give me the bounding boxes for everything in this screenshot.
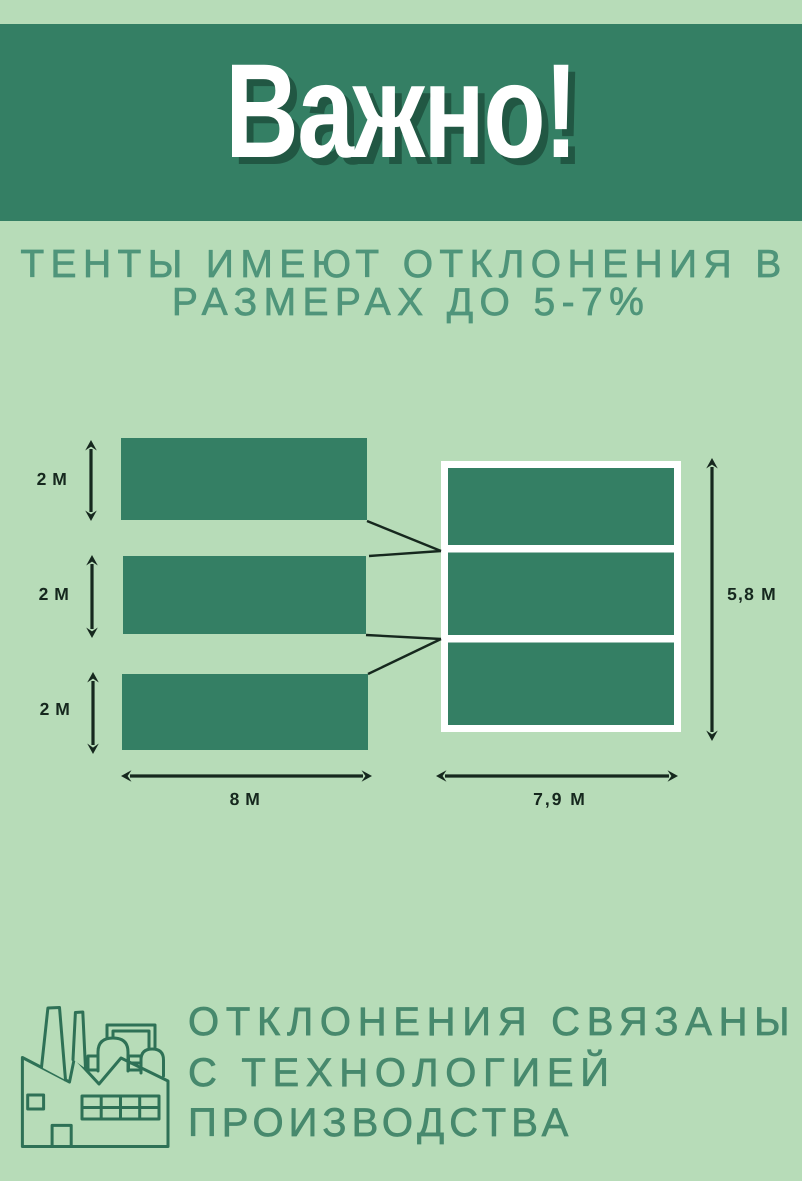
svg-text:2 М: 2 М	[40, 699, 71, 719]
svg-text:2 М: 2 М	[39, 584, 70, 604]
svg-text:5,8 М: 5,8 М	[727, 584, 777, 604]
svg-text:8 М: 8 М	[230, 789, 261, 809]
svg-text:7,9 М: 7,9 М	[533, 789, 587, 809]
svg-text:2 М: 2 М	[37, 469, 68, 489]
